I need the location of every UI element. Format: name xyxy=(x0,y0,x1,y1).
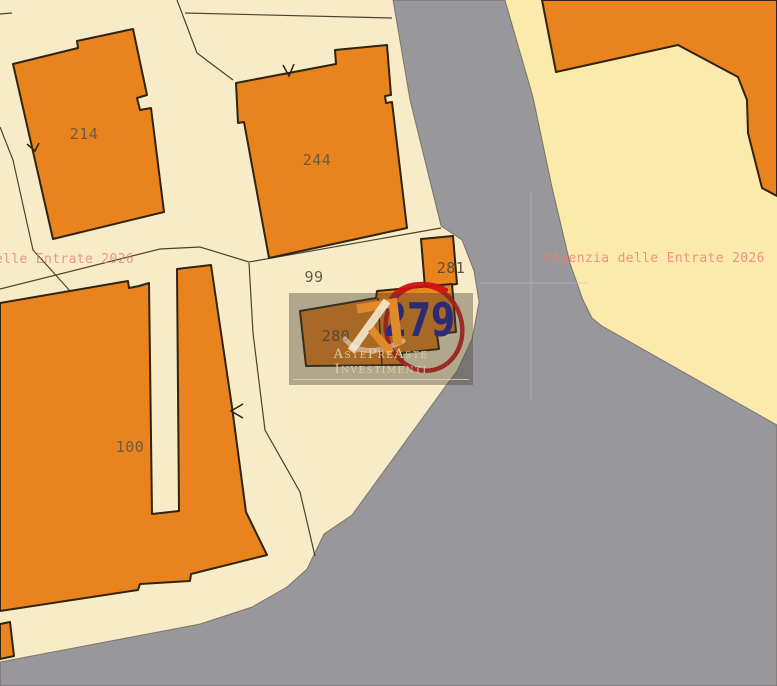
parcel-label-100: 100 xyxy=(116,438,145,456)
parcel-label-244: 244 xyxy=(303,151,332,169)
building-sliver-southwest xyxy=(0,622,14,659)
cadastral-map[interactable]: 214 244 99 281 280 100 279 AstePreAste I… xyxy=(0,0,777,686)
parcel-label-281: 281 xyxy=(437,259,466,277)
map-canvas[interactable]: 214 244 99 281 280 100 279 xyxy=(0,0,777,686)
parcel-label-214: 214 xyxy=(70,125,99,143)
parcel-label-280: 280 xyxy=(322,327,351,345)
parcel-label-279-highlight: 279 xyxy=(383,293,455,347)
parcel-label-99: 99 xyxy=(304,268,323,286)
